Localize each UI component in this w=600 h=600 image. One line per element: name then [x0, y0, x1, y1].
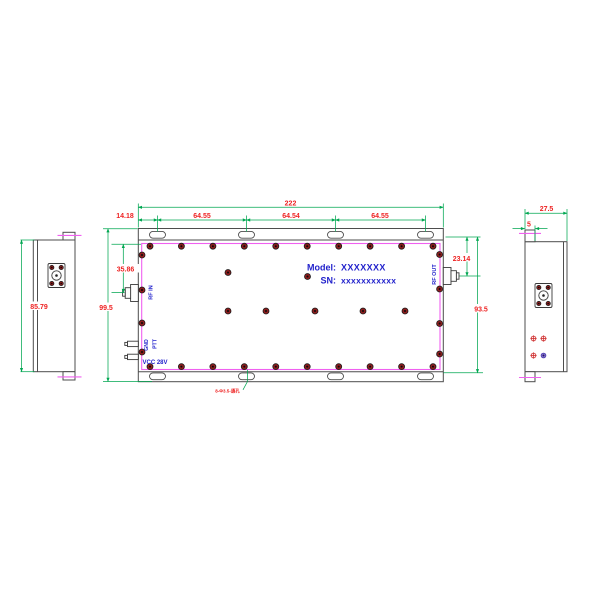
- sn-label: SN:: [321, 276, 337, 286]
- left-view-top-flange-tab: [63, 232, 75, 240]
- sn-value: xxxxxxxxxxx: [341, 276, 396, 286]
- screw: [437, 286, 443, 292]
- screw: [336, 364, 342, 370]
- right-side-view: [519, 230, 567, 382]
- dim-slot-pitch-3: 64.55: [371, 213, 389, 220]
- dim-flange-step: 5: [527, 222, 531, 229]
- dim-left-view-height: 85.79: [30, 304, 48, 311]
- rf-in-label: RF IN: [149, 285, 155, 299]
- screw: [367, 243, 373, 249]
- screw: [59, 265, 63, 269]
- right-view-top-flange-tab: [525, 230, 535, 242]
- right-view-rf-connector: [535, 284, 552, 308]
- screw: [59, 281, 63, 285]
- screw: [225, 270, 231, 276]
- drawing-canvas: Model: XXXXXXX SN: xxxxxxxxxxx RF IN RF …: [0, 0, 600, 600]
- dim-slot-pitch-1: 64.55: [193, 213, 211, 220]
- mounting-hole-note: 8-Φ3.5-通孔: [215, 388, 240, 395]
- screw: [273, 243, 279, 249]
- screw: [430, 364, 436, 370]
- rf-module-outline-drawing: Model: XXXXXXX SN: xxxxxxxxxxx RF IN RF …: [0, 0, 600, 600]
- main-top-view: Model: XXXXXXX SN: xxxxxxxxxxx RF IN RF …: [123, 229, 459, 382]
- dim-slot-pitch-2: 64.54: [282, 213, 300, 220]
- screw: [225, 308, 231, 314]
- screw: [304, 243, 310, 249]
- screw: [178, 364, 184, 370]
- dim-total-width: 222: [285, 201, 297, 208]
- screw: [402, 308, 408, 314]
- screw: [430, 243, 436, 249]
- screw: [50, 265, 54, 269]
- gnd-label: GND: [144, 339, 150, 351]
- vcc-label: VCC 28V: [143, 360, 168, 366]
- screw: [210, 243, 216, 249]
- screw: [537, 301, 541, 305]
- screw: [399, 243, 405, 249]
- dc-terminal-posts: [125, 341, 139, 359]
- screw: [139, 320, 145, 326]
- screw: [312, 308, 318, 314]
- screw: [178, 243, 184, 249]
- screw: [399, 364, 405, 370]
- screw: [437, 351, 443, 357]
- screw: [139, 252, 145, 258]
- screw: [546, 285, 550, 289]
- dim-rf-out-offset: 23.14: [453, 256, 471, 263]
- screw: [210, 364, 216, 370]
- dim-body-height: 93.5: [474, 307, 488, 314]
- screw: [304, 364, 310, 370]
- rf-out-label: RF OUT: [432, 264, 438, 285]
- screw: [241, 243, 247, 249]
- model-value: XXXXXXX: [341, 263, 386, 273]
- screw: [336, 243, 342, 249]
- screw: [437, 321, 443, 327]
- screw: [241, 364, 247, 370]
- screw: [437, 252, 443, 258]
- model-label: Model:: [307, 263, 336, 273]
- ptt-label: PTT: [153, 338, 159, 349]
- screw: [147, 243, 153, 249]
- screw: [537, 285, 541, 289]
- dim-rf-in-offset: 35.86: [117, 267, 135, 274]
- chassis-outline: [138, 229, 443, 382]
- rf-out-connector: [443, 268, 459, 285]
- dim-overall-depth: 27.5: [540, 206, 554, 213]
- right-view-bottom-flange-tab: [525, 372, 535, 382]
- screw: [546, 301, 550, 305]
- dim-edge-to-first-slot: 14.18: [116, 213, 134, 220]
- screw: [263, 308, 269, 314]
- screw: [50, 281, 54, 285]
- dim-overall-height: 99.5: [99, 305, 113, 312]
- screw: [367, 364, 373, 370]
- screw: [305, 274, 311, 280]
- screw: [273, 364, 279, 370]
- screw: [360, 308, 366, 314]
- rf-in-connector: [123, 285, 139, 302]
- left-view-rf-connector: [48, 264, 65, 288]
- left-view-bottom-flange-tab: [63, 372, 75, 380]
- screw: [139, 287, 145, 293]
